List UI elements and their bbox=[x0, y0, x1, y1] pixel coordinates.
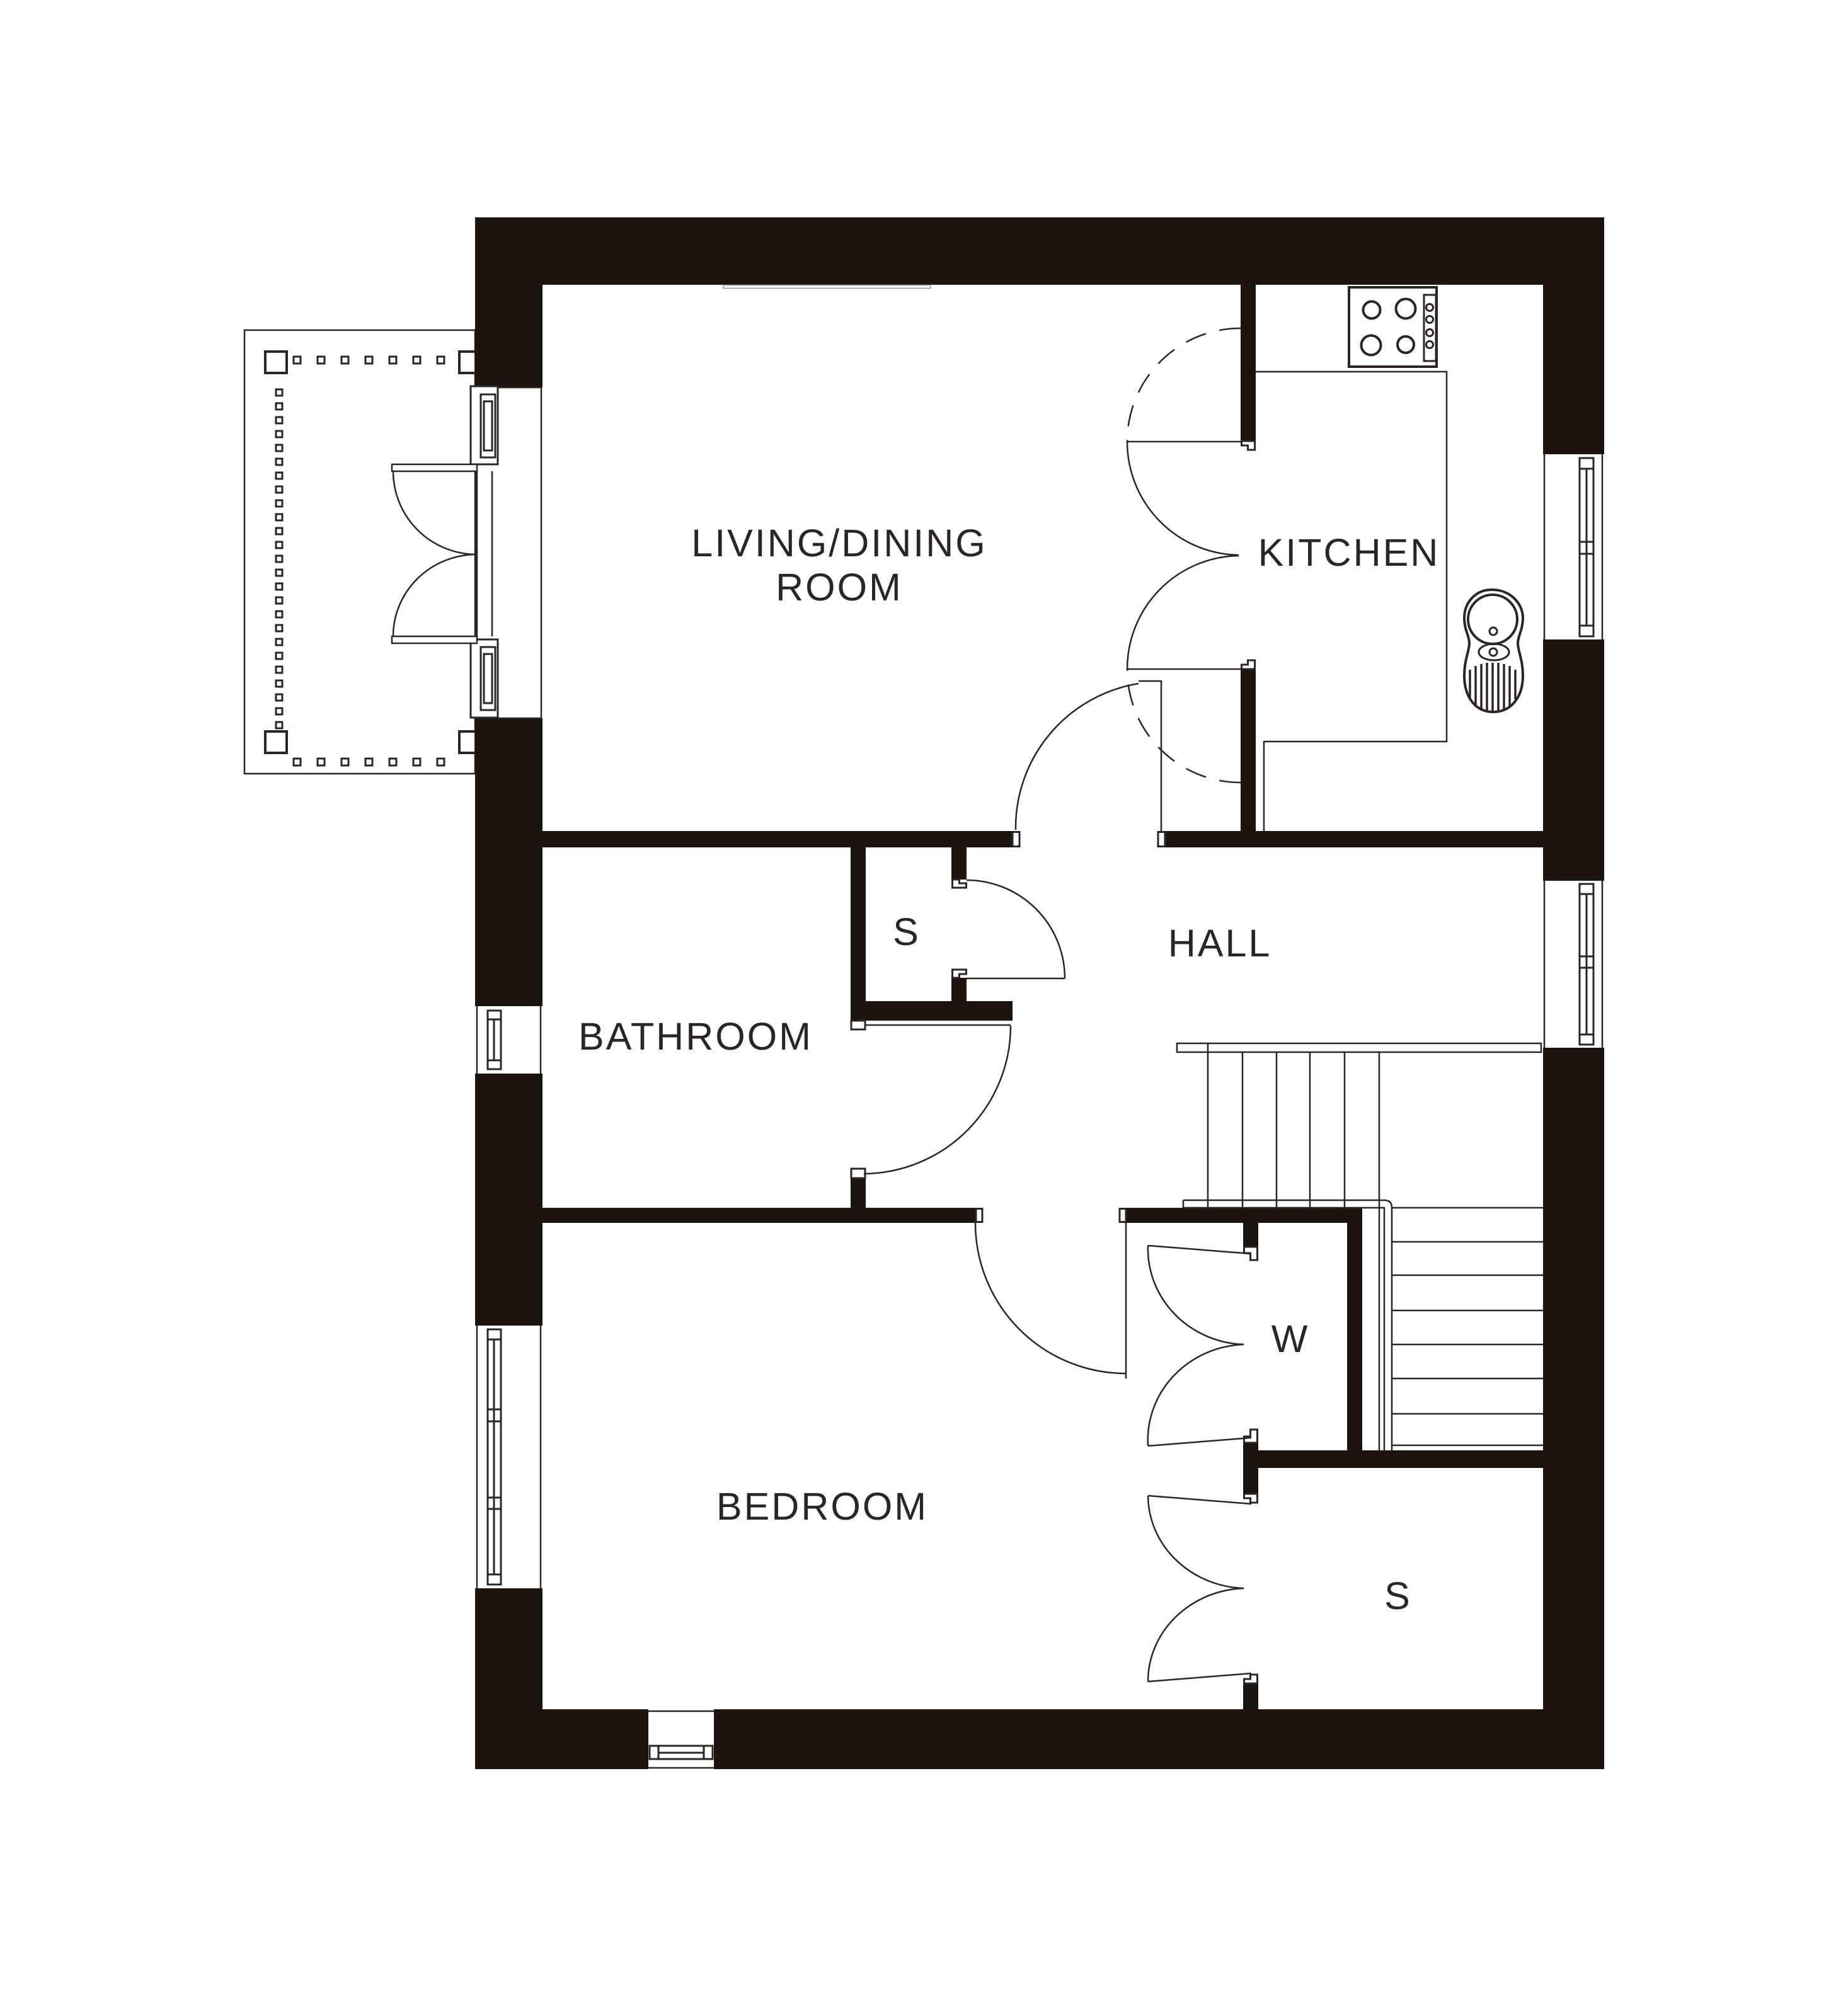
svg-text:BATHROOM: BATHROOM bbox=[578, 1015, 813, 1058]
svg-text:S: S bbox=[893, 910, 921, 953]
svg-text:KITCHEN: KITCHEN bbox=[1258, 531, 1440, 574]
svg-text:BEDROOM: BEDROOM bbox=[716, 1485, 928, 1528]
svg-text:ROOM: ROOM bbox=[776, 566, 903, 609]
svg-text:LIVING/DINING: LIVING/DINING bbox=[691, 522, 987, 565]
svg-text:W: W bbox=[1271, 1317, 1310, 1360]
svg-text:HALL: HALL bbox=[1168, 922, 1272, 965]
svg-text:S: S bbox=[1384, 1574, 1412, 1617]
